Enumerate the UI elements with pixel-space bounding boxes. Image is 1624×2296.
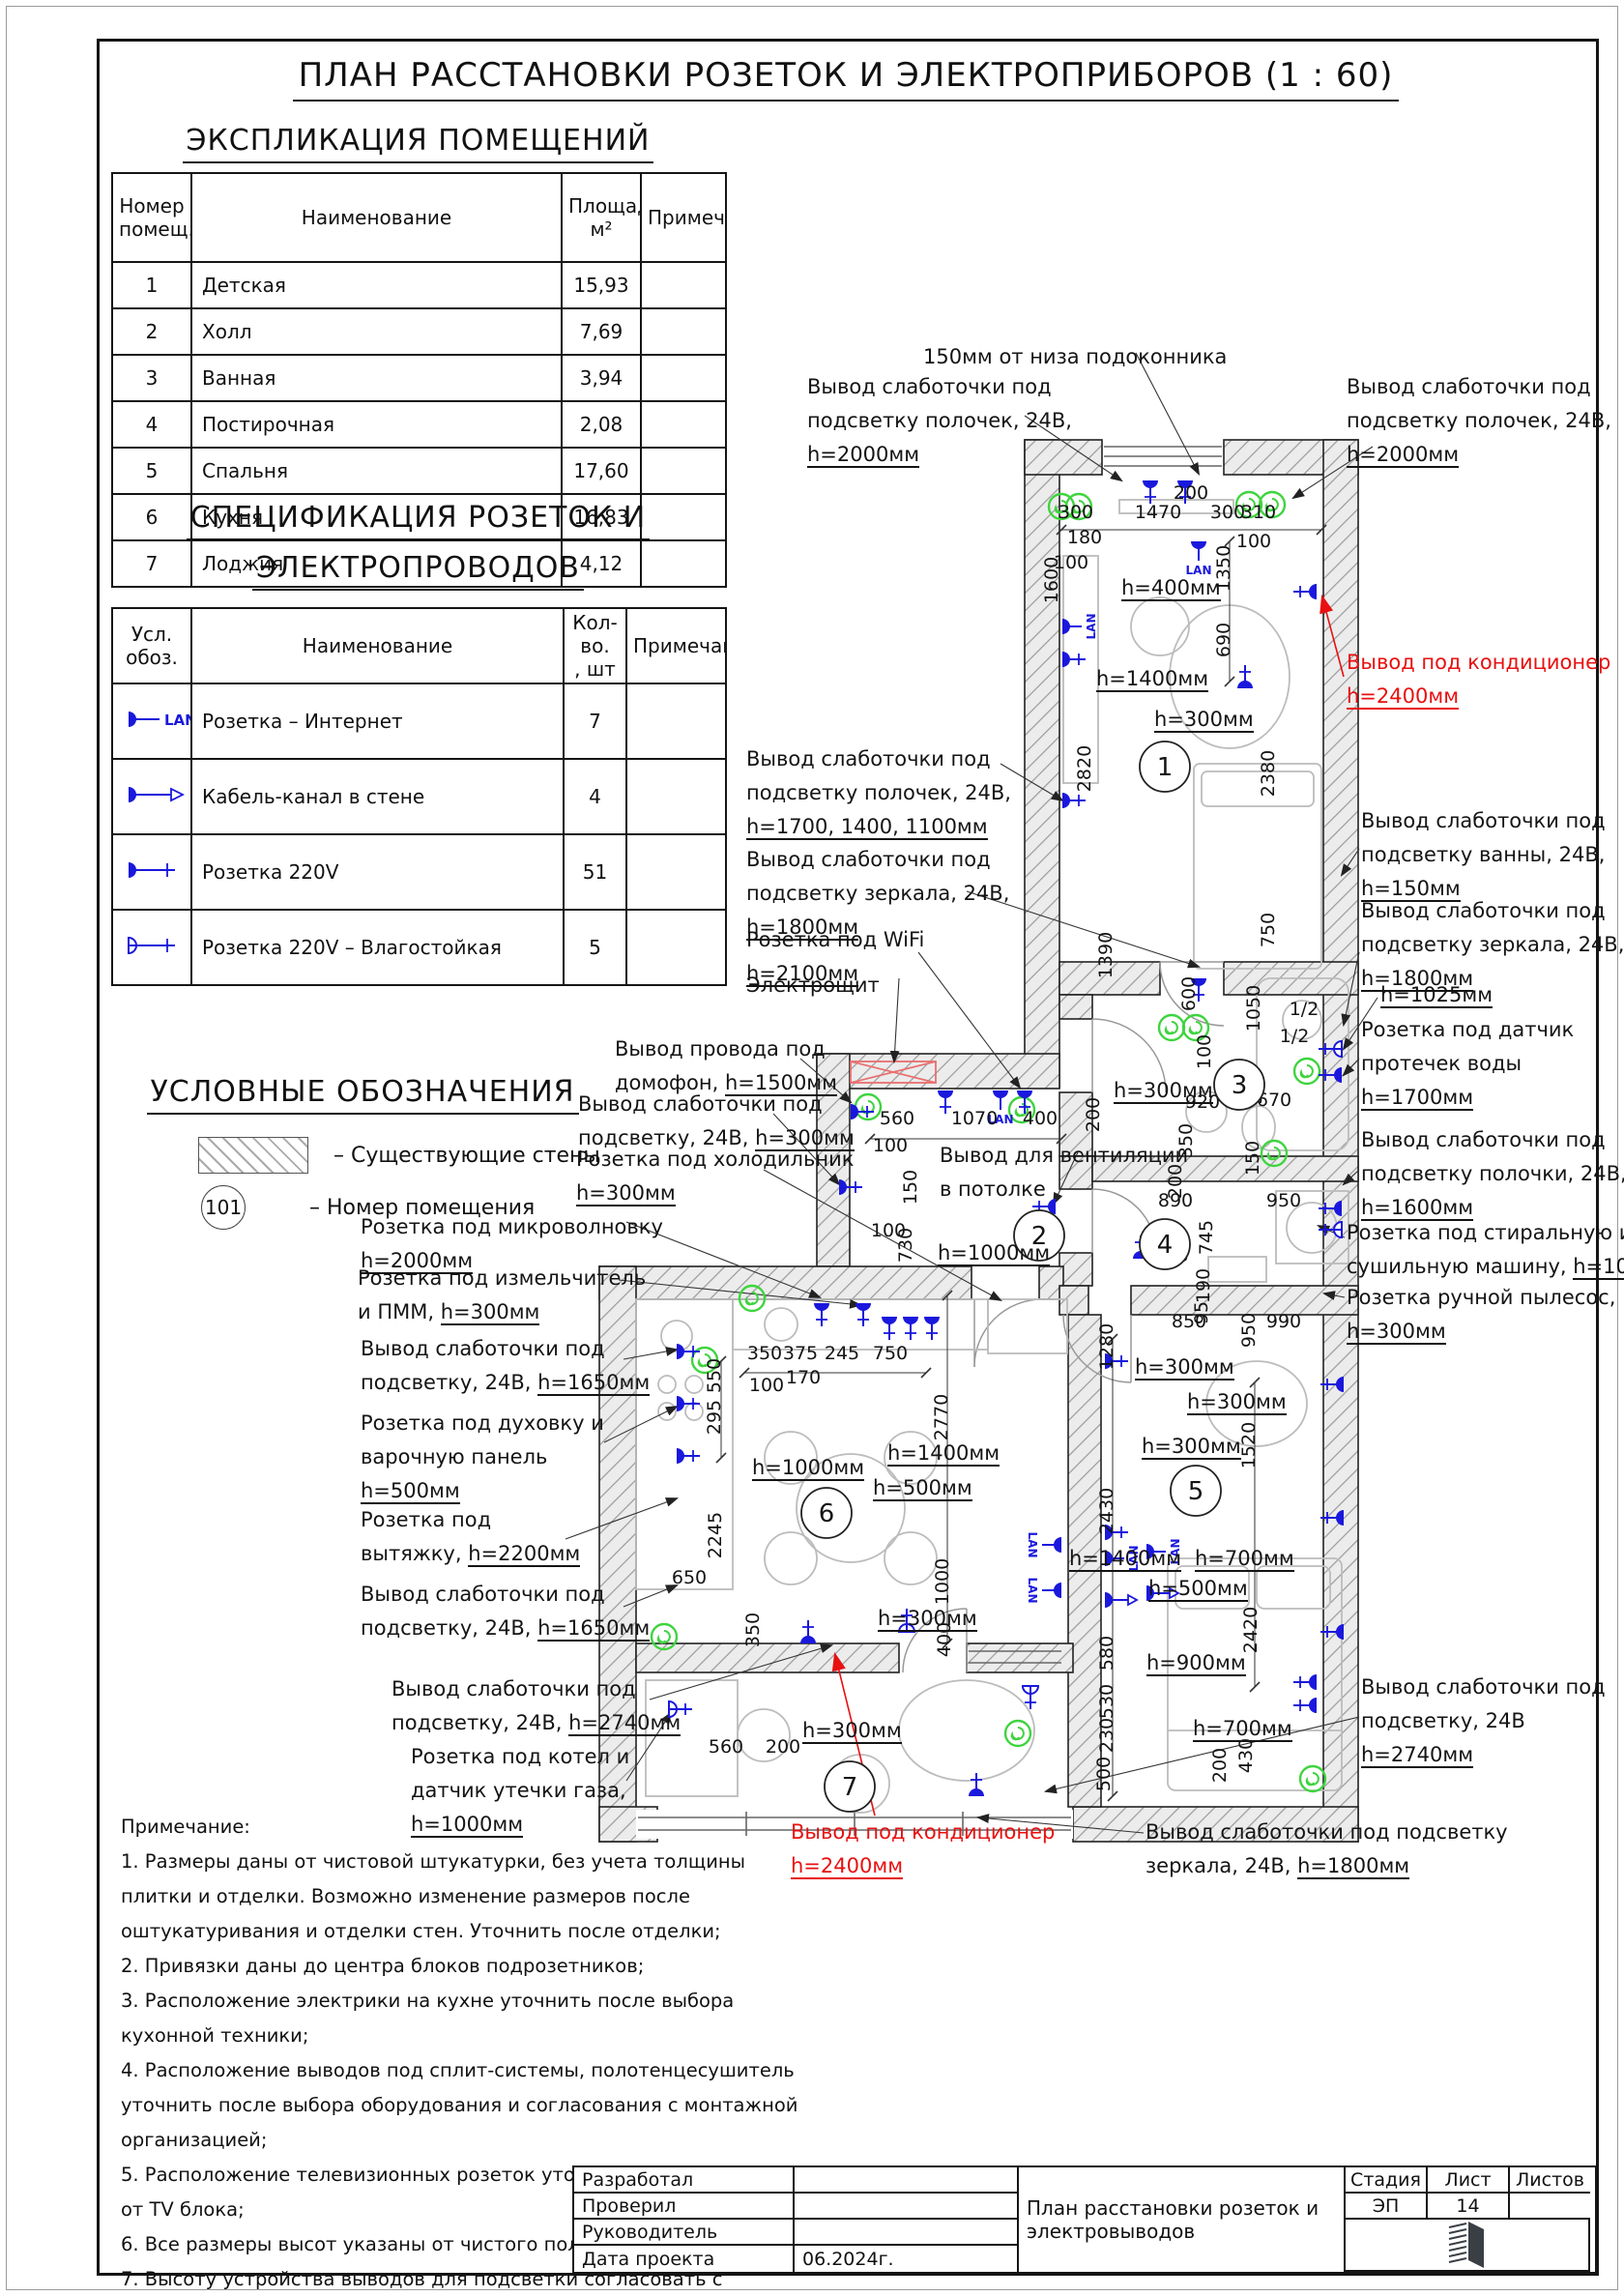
inline-height-label: h=1000мм: [938, 1241, 1050, 1264]
callout-line: Розетка под микроволновку: [361, 1210, 663, 1244]
note-item: 4. Расположение выводов под сплит-систем…: [121, 2053, 809, 2158]
callout-line: зеркала, 24В, h=1800мм: [1145, 1849, 1508, 1883]
drawing-sheet: ПЛАН РАССТАНОВКИ РОЗЕТОК И ЭЛЕКТРОПРИБОР…: [0, 0, 1624, 2296]
callout-line: Вывод слаботочки под: [578, 1088, 855, 1121]
inline-height-label: h=300мм: [1187, 1390, 1287, 1413]
wall-segment: [1059, 1286, 1088, 1315]
inline-height-label: h=300мм: [1142, 1435, 1241, 1458]
inline-height-label: h=300мм: [878, 1607, 977, 1630]
svg-text:LAN: LAN: [1186, 564, 1212, 577]
cable-channel-symbol: [1105, 1592, 1137, 1608]
inline-height-label: h=700мм: [1195, 1547, 1294, 1570]
plan-callout: Вывод под кондиционерh=2400мм: [1347, 646, 1610, 713]
callout-line: Вывод для вентиляции: [940, 1139, 1188, 1173]
dimension-label: 600: [1178, 976, 1200, 1011]
room-name: Детская: [191, 262, 562, 308]
dimension-label: 2245: [705, 1512, 726, 1558]
socket-symbol: [924, 1317, 940, 1340]
ceiling-outlet-icon: [1159, 1015, 1184, 1040]
dimension-label: 2820: [1074, 745, 1095, 792]
socket-symbol: [1237, 665, 1253, 688]
callout-line: Вывод слаботочки под подсветку: [1145, 1816, 1508, 1849]
tb-label-date: Дата проекта: [574, 2246, 795, 2272]
plan-callout: Розетка под духовку иварочную панельh=50…: [361, 1407, 604, 1508]
plan-callout: Вывод слаботочки подподсветку полочек, 2…: [1347, 370, 1611, 472]
dimension-label: 150: [900, 1170, 921, 1205]
plan-callout: 150мм от низа подоконника: [923, 340, 1227, 374]
dimension-label: 350: [747, 1343, 782, 1364]
ceiling-outlet-icon: [1294, 1059, 1319, 1084]
callout-line: Вывод слаботочки под: [807, 370, 1072, 404]
inline-height-label: h=500мм: [873, 1476, 972, 1499]
callout-line: Вывод слаботочки под: [746, 742, 1011, 776]
room-number-badge: 7: [825, 1761, 875, 1812]
dimension-label: 1/2: [1280, 1026, 1310, 1047]
explication-col-note: Примечание: [641, 173, 726, 262]
room-number-badge: 6: [801, 1488, 852, 1538]
callout-line: Электрощит: [746, 969, 880, 1003]
wall-segment: [1059, 995, 1092, 1019]
callout-line: Розетка под измельчитель: [358, 1262, 646, 1295]
dimension-label: 500: [1093, 1757, 1115, 1791]
tb-value-developed: [795, 2167, 1019, 2194]
dimension-label: 530: [1096, 1684, 1117, 1719]
callout-height-value: h=1700мм: [1361, 1086, 1473, 1111]
svg-text:7: 7: [842, 1773, 858, 1802]
inline-height-label: h=300мм: [802, 1719, 902, 1742]
lan-socket-symbol: LAN: [1062, 614, 1098, 640]
note-item: 2. Привязки даны до центра блоков подроз…: [121, 1949, 809, 1984]
callout-line: Вывод провода под: [615, 1032, 837, 1066]
dimension-label: 1390: [1095, 932, 1116, 978]
svg-text:LAN: LAN: [1026, 1532, 1039, 1558]
svg-text:LAN: LAN: [1085, 614, 1098, 640]
callout-height-value: h=1700, 1400, 1100мм: [746, 815, 988, 840]
callout-line: варочную панель: [361, 1440, 604, 1474]
ceiling-outlet-icon: [855, 1094, 881, 1119]
dimension-label: 230: [1096, 1718, 1117, 1753]
dimension-label: 300: [1210, 502, 1245, 523]
lan-socket-symbol: LAN: [1186, 541, 1212, 577]
inline-height-label: h=1400мм: [1069, 1547, 1181, 1570]
room-number: 2: [112, 308, 191, 355]
callout-line: подсветку зеркала, 24В,: [1361, 928, 1624, 962]
dimension-label: 1280: [1096, 1323, 1117, 1370]
callout-line: подсветку, 24В: [1361, 1704, 1606, 1738]
dimension-label: 100: [1236, 531, 1271, 552]
callout-line: Вывод слаботочки под: [361, 1332, 650, 1366]
plan-callout: Вывод слаботочки подподсветку ванны, 24В…: [1361, 804, 1606, 906]
inline-height-label: h=300мм: [1114, 1079, 1213, 1102]
svg-text:LAN: LAN: [1026, 1578, 1039, 1604]
callout-line: Вывод под кондиционер: [791, 1816, 1055, 1849]
plan-callout: Вывод слаботочки подподсветку полочек, 2…: [746, 742, 1011, 844]
dimension-label: 375: [783, 1343, 818, 1364]
tb-stage-header: Стадия: [1346, 2167, 1428, 2194]
callout-line: Вывод слаботочки под: [1361, 894, 1624, 928]
callout-line: подсветку ванны, 24В,: [1361, 838, 1606, 872]
callout-line: Розетка под WiFi: [746, 923, 924, 957]
callout-line: в потолке: [940, 1173, 1188, 1206]
callout-line: подсветку, 24В, h=1650мм: [361, 1366, 650, 1400]
callout-height-value: h=2740мм: [1361, 1743, 1473, 1768]
callout-line: Вывод под кондиционер: [1347, 646, 1610, 680]
dimension-label: 400: [1023, 1108, 1058, 1129]
room-number: 3: [112, 355, 191, 401]
room-number: 1: [112, 262, 191, 308]
callout-line: подсветку полочек, 24В,: [807, 404, 1072, 438]
dimension-label: 750: [1258, 913, 1279, 947]
existing-wall-swatch: [198, 1137, 308, 1174]
socket-symbol: [969, 1773, 984, 1796]
callout-height-value: h=500мм: [361, 1479, 460, 1504]
plan-callout: Розетка под датчикпротечек водыh=1700мм: [1361, 1013, 1574, 1115]
inline-height-label: h=700мм: [1193, 1717, 1292, 1740]
explication-row: 1Детская15,93: [112, 262, 726, 308]
tb-value-checked: [795, 2194, 1019, 2220]
spec-col-symbol: Усл. обоз.: [112, 608, 191, 683]
lan-symbol-icon: LAN: [112, 683, 191, 759]
svg-text:LAN: LAN: [164, 712, 191, 729]
callout-line: h=300мм: [1347, 1315, 1615, 1349]
tb-label-developed: Разработал: [574, 2167, 795, 2194]
dimension-label: 690: [1213, 623, 1234, 657]
callout-line: Вывод слаботочки под: [391, 1672, 681, 1706]
plan-callout: Вывод слаботочки подподсветку полочек, 2…: [807, 370, 1072, 472]
dimension-label: 2770: [931, 1394, 952, 1440]
callout-line: подсветку полочек, 24В,: [1347, 404, 1611, 438]
wall-segment: [1025, 440, 1059, 1088]
socket-symbol: [1293, 584, 1317, 599]
tb-label-lead: Руководитель: [574, 2220, 795, 2246]
callout-line: Вывод слаботочки под: [1361, 804, 1606, 838]
wall-segment: [636, 1643, 899, 1672]
inline-height-label: h=1400мм: [1096, 667, 1208, 690]
tb-stage-value: ЭП: [1346, 2194, 1428, 2220]
dimension-label: 580: [1096, 1636, 1117, 1671]
callout-height-value: h=2400мм: [1347, 684, 1459, 710]
plan-callout: Вывод слаботочки подподсветку полочки, 2…: [1361, 1123, 1624, 1225]
dimension-label: 1050: [1243, 985, 1264, 1032]
svg-text:3: 3: [1232, 1071, 1248, 1100]
dimension-label: 2380: [1258, 750, 1279, 797]
company-logo: [1346, 2220, 1590, 2272]
page-title: ПЛАН РАССТАНОВКИ РОЗЕТОК И ЭЛЕКТРОПРИБОР…: [97, 56, 1595, 102]
lan-socket-symbol: LAN: [1026, 1578, 1061, 1604]
dimension-label: 200: [1174, 482, 1208, 504]
dimension-label: 150: [1242, 1141, 1263, 1176]
dimension-label: 560: [709, 1736, 743, 1758]
room-number-badge: 4: [1140, 1219, 1190, 1269]
callout-line: Розетка ручной пылесос,: [1347, 1281, 1615, 1315]
room-number: 5: [112, 448, 191, 494]
tb-sheets-value: [1510, 2194, 1590, 2220]
explication-col-area: Площадь, м²: [562, 173, 641, 262]
explication-col-num: Номер помещ.: [112, 173, 191, 262]
dimension-label: 1600: [1041, 557, 1062, 603]
tb-sheet-value: 14: [1428, 2194, 1510, 2220]
callout-line: Вывод слаботочки под: [361, 1578, 650, 1612]
dimension-label: 1/2: [1290, 999, 1319, 1020]
plan-callout: Вывод слаботочки подподсветку, 24В, h=16…: [361, 1332, 650, 1400]
socket-symbol: [855, 1303, 871, 1326]
dimension-label: 200: [1209, 1748, 1231, 1783]
inline-height-label: h=1400мм: [887, 1441, 1000, 1465]
dimension-label: 190: [1193, 1268, 1214, 1303]
callout-line: датчик утечки газа,: [411, 1774, 629, 1808]
title-block: Разработал План расстановки розеток и эл…: [572, 2165, 1597, 2274]
callout-line: Вывод слаботочки под: [1361, 1123, 1624, 1157]
tb-sheets-header: Листов: [1510, 2167, 1590, 2194]
callout-line: Розетка под котел и: [411, 1740, 629, 1774]
inline-height-label: h=1000мм: [752, 1456, 864, 1479]
callout-line: подсветку полочки, 24В,: [1361, 1157, 1624, 1191]
callout-height-value: h=2000мм: [1347, 443, 1459, 468]
cable-symbol-icon: [112, 759, 191, 834]
plan-callout: Розетка под стиральную исушильную машину…: [1347, 1216, 1624, 1284]
tb-doc-title: План расстановки розеток и электровыводо…: [1019, 2167, 1346, 2272]
callout-line: и ПММ, h=300мм: [358, 1295, 646, 1329]
inline-height-label: h=500мм: [1148, 1577, 1248, 1600]
dimension-label: 1520: [1238, 1422, 1260, 1468]
inline-height-label: h=300мм: [1154, 708, 1254, 731]
socket-symbol: [677, 1448, 700, 1464]
callout-line: Розетка под стиральную и: [1347, 1216, 1624, 1250]
socket-symbol: [814, 1303, 829, 1326]
sock-symbol-icon: [112, 834, 191, 910]
plan-callout: Розетка под холодильникh=300мм: [576, 1143, 854, 1210]
ceiling-outlet-icon: [1005, 1721, 1030, 1746]
dimension-label: 200: [1083, 1097, 1104, 1132]
dimension-label: 100: [873, 1135, 908, 1156]
plan-callout: Розетка ручной пылесос,h=300мм: [1347, 1281, 1615, 1349]
callout-height-value: h=2400мм: [791, 1854, 903, 1879]
dimension-label: 950: [1238, 1313, 1260, 1348]
explication-heading: ЭКСПЛИКАЦИЯ ПОМЕЩЕНИЙ: [111, 124, 725, 163]
dimension-label: 550: [704, 1358, 725, 1393]
tb-value-date: 06.2024г.: [795, 2246, 1019, 2272]
dimension-label: 430: [1235, 1738, 1257, 1773]
dimension-label: 200: [766, 1736, 800, 1758]
callout-line: вытяжку, h=2200мм: [361, 1537, 580, 1571]
lan-socket-symbol: LAN: [1026, 1532, 1061, 1558]
dimension-label: 170: [786, 1367, 821, 1388]
socket-symbol: [903, 1317, 918, 1340]
callout-line: подсветку полочек, 24В,: [746, 776, 1011, 810]
wet-symbol-icon: [112, 910, 191, 985]
socket-symbol: [1293, 1698, 1317, 1713]
socket-symbol: [1293, 1674, 1317, 1690]
callout-line: сушильную машину, h=1000мм: [1347, 1250, 1624, 1284]
tb-sheet-header: Лист: [1428, 2167, 1510, 2194]
dimension-label: 745: [1196, 1220, 1217, 1255]
plan-callout: h=1025мм: [1380, 978, 1493, 1012]
inline-height-label: h=900мм: [1146, 1651, 1246, 1674]
dimension-label: 850: [1172, 1311, 1206, 1332]
svg-text:4: 4: [1157, 1231, 1174, 1260]
callout-line: подсветку, 24В, h=2740мм: [391, 1706, 681, 1740]
dimension-label: 1070: [951, 1108, 998, 1129]
callout-line: протечек воды: [1361, 1047, 1574, 1081]
inline-height-label: h=400мм: [1121, 576, 1221, 599]
dimension-label: 180: [1067, 527, 1102, 548]
dimension-label: 750: [873, 1343, 908, 1364]
plan-callout: Вывод слаботочки подподсветку, 24В, h=16…: [361, 1578, 650, 1645]
dimension-label: 245: [825, 1343, 859, 1364]
dimension-label: 350: [742, 1613, 764, 1647]
tb-value-lead: [795, 2220, 1019, 2246]
room-number-badge: 1: [1140, 741, 1190, 792]
wall-segment: [1131, 1286, 1358, 1315]
callout-line: Вывод слаботочки под: [1347, 370, 1611, 404]
callout-height-value: h=2000мм: [807, 443, 919, 468]
room-area: 15,93: [562, 262, 641, 308]
socket-symbol: [882, 1317, 897, 1340]
wall-segment: [1059, 1253, 1092, 1286]
dimension-label: 100: [749, 1375, 784, 1396]
room-number: 4: [112, 401, 191, 448]
socket-symbol: [800, 1620, 816, 1643]
dimension-label: 295: [704, 1400, 725, 1435]
svg-text:1: 1: [1157, 753, 1174, 782]
dimension-label: 100: [1194, 1034, 1215, 1069]
dimension-label: 2430: [1096, 1488, 1117, 1534]
dimension-label: 560: [880, 1108, 914, 1129]
inline-height-label: h=300мм: [1135, 1355, 1234, 1379]
wall-segment: [967, 1643, 1073, 1672]
dimension-label: 950: [1266, 1190, 1301, 1211]
room-number-badge: 5: [1171, 1466, 1221, 1516]
room-note: [641, 262, 726, 308]
explication-col-name: Наименование: [191, 173, 562, 262]
dimension-label: 310: [1241, 502, 1276, 523]
svg-text:5: 5: [1188, 1477, 1204, 1506]
plan-callout: Электрощит: [746, 969, 880, 1003]
note-item: 3. Расположение электрики на кухне уточн…: [121, 1984, 809, 2053]
callout-height-value: h=300мм: [576, 1181, 676, 1206]
plan-callout: Розетка под измельчительи ПММ, h=300мм: [358, 1262, 646, 1329]
callout-height-value: h=1025мм: [1380, 983, 1493, 1008]
dimension-label: 730: [895, 1228, 916, 1263]
plan-callout: Розетка подвытяжку, h=2200мм: [361, 1503, 580, 1571]
dimension-label: 1000: [932, 1558, 953, 1605]
plan-callout: Розетка под котел идатчик утечки газа,h=…: [411, 1740, 629, 1842]
dimension-label: 300: [1058, 502, 1093, 523]
socket-symbol: [677, 1396, 700, 1411]
plan-callout: Вывод слаботочки под подсветкузеркала, 2…: [1145, 1816, 1508, 1883]
dimension-label: 990: [1266, 1311, 1301, 1332]
dimension-label: 2420: [1240, 1607, 1261, 1653]
ceiling-outlet-icon: [1300, 1766, 1325, 1791]
plan-callout: Вывод слаботочки подподсветку, 24В, h=27…: [391, 1672, 681, 1740]
room-number-badge: 3: [1214, 1060, 1264, 1110]
svg-text:6: 6: [819, 1499, 835, 1528]
socket-symbol: [1062, 652, 1086, 667]
plan-callout: Вывод для вентиляциив потолке: [940, 1139, 1188, 1206]
callout-line: подсветку зеркала, 24В,: [746, 877, 1009, 911]
callout-line: Розетка под: [361, 1503, 580, 1537]
callout-line: 150мм от низа подоконника: [923, 340, 1227, 374]
room-number-sample-icon: 101: [201, 1185, 246, 1230]
callout-line: подсветку, 24В, h=1650мм: [361, 1612, 650, 1645]
dimension-label: 1470: [1135, 502, 1181, 523]
callout-height-value: h=1000мм: [411, 1813, 523, 1838]
callout-line: Розетка под холодильник: [576, 1143, 854, 1177]
plan-callout: Вывод слаботочки подподсветку, 24Вh=2740…: [1361, 1671, 1606, 1772]
socket-symbol: [1062, 793, 1086, 808]
callout-line: Вывод слаботочки под: [746, 843, 1009, 877]
callout-line: Розетка под духовку и: [361, 1407, 604, 1440]
plan-callout: Вывод под кондиционерh=2400мм: [791, 1816, 1055, 1883]
tb-label-checked: Проверил: [574, 2194, 795, 2220]
callout-line: Вывод слаботочки под: [1361, 1671, 1606, 1704]
dimension-label: 650: [672, 1567, 707, 1588]
callout-line: Розетка под датчик: [1361, 1013, 1574, 1047]
